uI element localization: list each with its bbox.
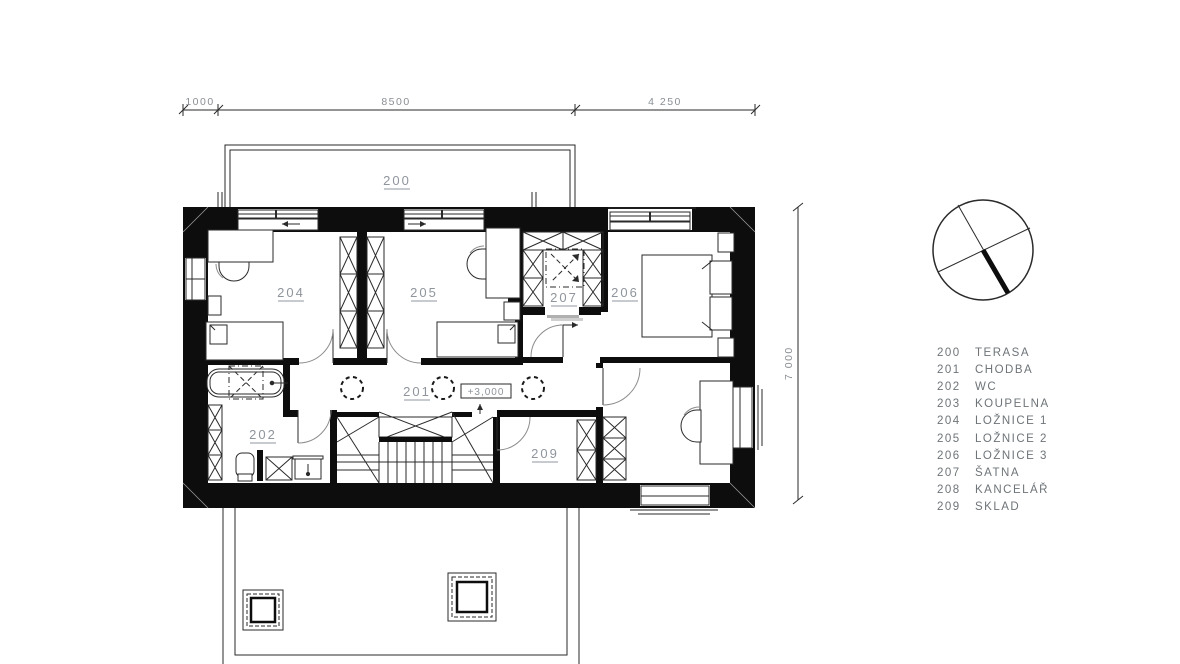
bed-icon xyxy=(206,322,283,360)
svg-text:202: 202 xyxy=(937,381,961,393)
ceiling-light-icon xyxy=(341,377,544,399)
room-202 xyxy=(207,366,331,481)
ceiling-hatch-icon xyxy=(546,249,584,287)
toilet-icon xyxy=(236,453,254,481)
svg-text:CHODBA: CHODBA xyxy=(975,364,1033,376)
staircase xyxy=(337,412,493,483)
svg-text:WC: WC xyxy=(975,381,997,393)
room-label-205: 205 xyxy=(410,285,438,300)
svg-text:205: 205 xyxy=(937,433,961,445)
washbasin-icon xyxy=(293,456,323,479)
legend-row: 208 KANCELÁŘ xyxy=(937,483,1049,496)
svg-text:203: 203 xyxy=(937,398,961,410)
wardrobe-icon xyxy=(340,237,357,348)
column-icon xyxy=(243,590,283,630)
wardrobe-icon xyxy=(603,417,626,480)
wardrobe-icon xyxy=(577,420,596,480)
nightstand-icon xyxy=(504,302,520,320)
floor-plan-sheet: 1000 8500 4 250 7 000 200 xyxy=(0,0,1180,664)
svg-text:208: 208 xyxy=(937,484,961,496)
door-arc-209 xyxy=(497,417,530,450)
svg-text:207: 207 xyxy=(937,467,961,479)
svg-text:LOŽNICE 3: LOŽNICE 3 xyxy=(975,449,1048,462)
svg-text:TERASA: TERASA xyxy=(975,347,1030,359)
door-arc-office xyxy=(603,368,640,405)
window-top-2 xyxy=(404,210,484,230)
svg-text:ŠATNA: ŠATNA xyxy=(975,466,1020,479)
wardrobe-icon xyxy=(208,405,222,480)
bed-icon xyxy=(437,322,518,357)
svg-text:KOUPELNA: KOUPELNA xyxy=(975,398,1050,410)
north-arrow-icon xyxy=(933,200,1033,300)
desk-icon xyxy=(700,381,733,464)
floor-plan-drawing: 1000 8500 4 250 7 000 200 xyxy=(0,0,1180,664)
window-left xyxy=(186,258,205,300)
elevation-label: +3,000 xyxy=(468,387,505,398)
dim-top-right: 4 250 xyxy=(648,96,682,108)
double-bed-icon xyxy=(642,255,732,337)
dim-right: 7 000 xyxy=(783,346,795,380)
door-arc-202 xyxy=(298,410,331,443)
window-bottom-office xyxy=(630,486,718,514)
cabinet-icon xyxy=(266,457,292,480)
room-label-206: 206 xyxy=(611,285,639,300)
room-label-209: 209 xyxy=(531,446,559,461)
corridor-201 xyxy=(341,377,544,414)
room-office xyxy=(603,368,733,480)
room-label-202: 202 xyxy=(249,427,277,442)
svg-text:204: 204 xyxy=(937,415,961,427)
room-label-204: 204 xyxy=(277,285,305,300)
sliding-door-icon xyxy=(547,315,583,328)
column-icon xyxy=(448,573,496,621)
window-top-1 xyxy=(238,210,318,230)
legend-row: 204 LOŽNICE 1 xyxy=(937,414,1048,427)
door-arc-205 xyxy=(387,329,421,363)
room-legend: 200 TERASA 201 CHODBA 202 WC 203 KOUPELN… xyxy=(937,347,1050,513)
legend-row: 205 LOŽNICE 2 xyxy=(937,432,1048,445)
legend-row: 207 ŠATNA xyxy=(937,466,1020,479)
window-right-office xyxy=(733,385,762,450)
chair-icon xyxy=(216,262,249,281)
legend-row: 202 WC xyxy=(937,381,997,393)
svg-text:200: 200 xyxy=(937,347,961,359)
room-label-201: 201 xyxy=(403,384,431,399)
shelf-icon xyxy=(208,296,221,315)
lower-terrace-outline xyxy=(223,508,579,664)
room-label-207: 207 xyxy=(550,290,578,305)
dim-top-left: 1000 xyxy=(185,96,214,108)
legend-row: 209 SKLAD xyxy=(937,501,1020,513)
legend-row: 203 KOUPELNA xyxy=(937,398,1050,410)
svg-text:LOŽNICE 1: LOŽNICE 1 xyxy=(975,414,1048,427)
svg-text:206: 206 xyxy=(937,450,961,462)
room-label-terasa: 200 xyxy=(383,173,411,188)
room-205 xyxy=(367,228,520,363)
door-arc-206 xyxy=(531,325,563,357)
svg-text:209: 209 xyxy=(937,501,961,513)
desk-icon xyxy=(208,230,273,262)
legend-row: 206 LOŽNICE 3 xyxy=(937,449,1048,462)
bathtub-icon xyxy=(207,369,288,397)
svg-text:201: 201 xyxy=(937,364,961,376)
chair-icon xyxy=(681,407,701,442)
door-arc-204 xyxy=(299,329,333,363)
svg-text:LOŽNICE 2: LOŽNICE 2 xyxy=(975,432,1048,445)
desk-icon xyxy=(486,228,520,298)
stair-up-arrow-icon xyxy=(477,404,483,414)
legend-row: 200 TERASA xyxy=(937,347,1030,359)
wardrobe-icon xyxy=(367,237,384,348)
svg-text:SKLAD: SKLAD xyxy=(975,501,1020,513)
chair-icon xyxy=(467,246,486,279)
svg-text:KANCELÁŘ: KANCELÁŘ xyxy=(975,483,1049,496)
dim-top-mid: 8500 xyxy=(381,96,410,108)
legend-row: 201 CHODBA xyxy=(937,364,1033,376)
